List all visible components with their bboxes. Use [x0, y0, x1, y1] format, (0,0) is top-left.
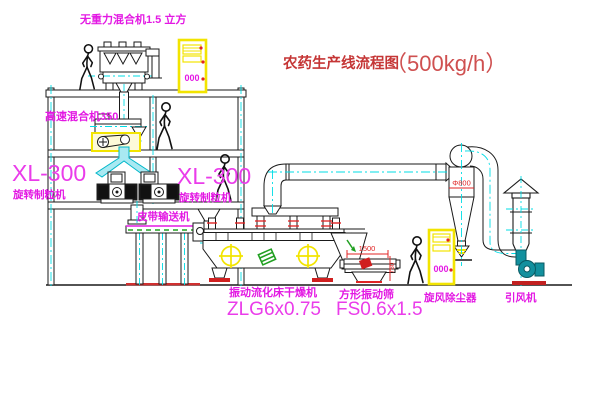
- indicator-light-icon: [201, 77, 204, 80]
- person-ground-floor: [408, 237, 423, 284]
- dryer-feet: [209, 268, 333, 282]
- exhaust-duct: [264, 163, 456, 214]
- label-belt-conveyor: 皮带输送机: [136, 210, 190, 223]
- indicator-light-icon: [199, 46, 202, 49]
- screen-height-dimension: 750: [389, 262, 396, 273]
- title-capacity: （500kg/h）: [385, 51, 507, 76]
- cabinet-right-display: 000: [433, 264, 448, 274]
- person-top-floor: [80, 45, 94, 90]
- label-cyclone-name: 旋风除尘器: [423, 291, 477, 304]
- diagram-svg: 000: [0, 0, 600, 403]
- label-granulator-left-model: XL-300: [12, 160, 86, 186]
- dryer-risers: [255, 216, 332, 229]
- process-flow-diagram: 000: [0, 0, 600, 403]
- screen-width-dimension: 1500: [359, 244, 376, 253]
- control-cabinet-top: 000: [179, 40, 206, 92]
- person-second-floor: [157, 103, 172, 150]
- indicator-light-icon: [446, 238, 449, 241]
- label-fan-name: 引风机: [505, 291, 537, 304]
- label-high-speed-mixer: 高速混合机350: [45, 109, 118, 123]
- label-dryer-model: ZLG6x0.75: [227, 299, 321, 320]
- label-gravity-mixer: 无重力混合机1.5 立方: [79, 12, 186, 26]
- label-granulator-right-name: 旋转制粒机: [178, 191, 232, 204]
- drawing-title: 农药生产线流程图 （500kg/h）: [282, 51, 507, 76]
- cabinet-top-display: 000: [184, 73, 199, 83]
- label-dryer-name: 振动流化床干燥机: [229, 285, 317, 299]
- cyclone-diameter-dimension: Φ800: [452, 179, 471, 188]
- label-granulator-right-model: XL-300: [177, 163, 251, 189]
- granulator-right: [139, 172, 179, 203]
- indicator-light-icon: [449, 268, 452, 271]
- label-screen-model: FS0.6x1.5: [336, 299, 423, 320]
- induced-draft-fan: [512, 250, 546, 285]
- title-text: 农药生产线流程图: [282, 54, 399, 72]
- fluid-bed-dryer: [200, 208, 348, 282]
- label-granulator-left-name: 旋转制粒机: [12, 188, 66, 201]
- spring-mounts: [207, 218, 341, 229]
- indicator-light-icon: [201, 60, 204, 63]
- control-cabinet-right: 000: [429, 230, 454, 284]
